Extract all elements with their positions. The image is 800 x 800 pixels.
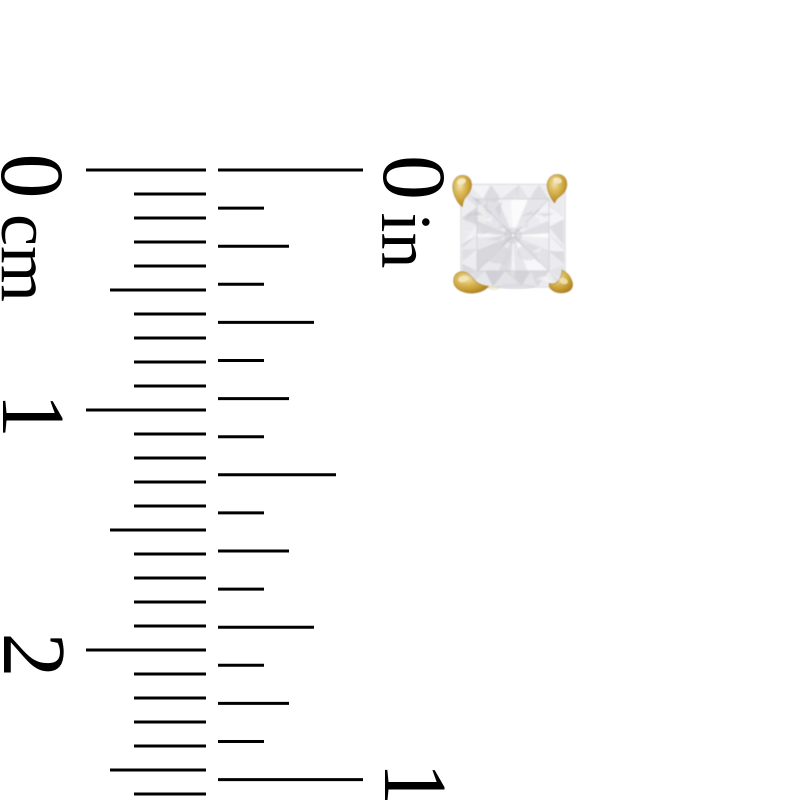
svg-text:cm: cm bbox=[0, 214, 66, 302]
svg-text:1: 1 bbox=[365, 762, 464, 800]
svg-text:2: 2 bbox=[0, 633, 83, 678]
svg-text:1: 1 bbox=[0, 393, 82, 438]
svg-text:0: 0 bbox=[364, 155, 463, 200]
svg-text:in: in bbox=[366, 212, 446, 268]
svg-text:0: 0 bbox=[0, 154, 81, 199]
